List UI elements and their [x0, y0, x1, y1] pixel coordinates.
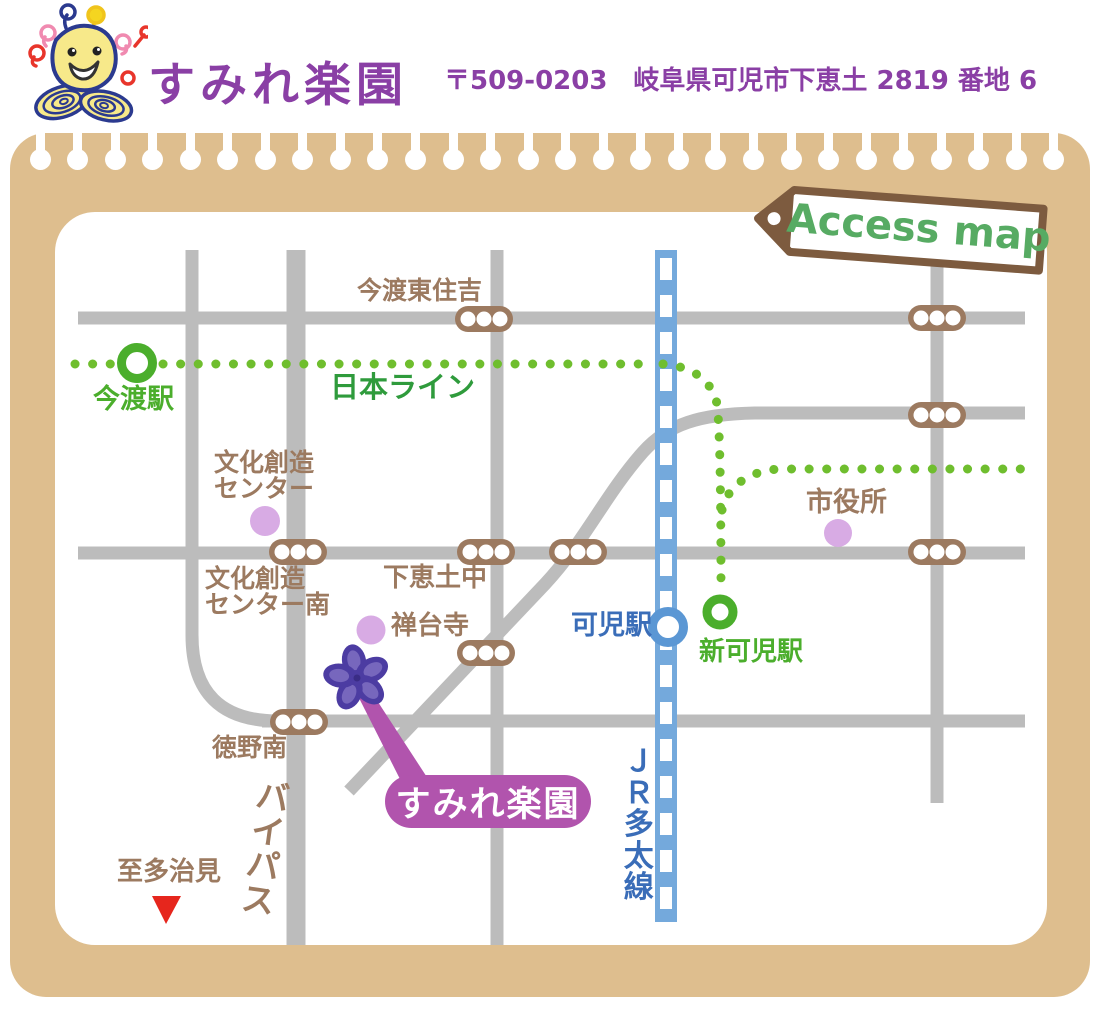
label-shimoedo-junior-high: 下恵土中 — [383, 565, 487, 592]
access-map-page: すみれ楽園 〒509-0203 岐阜県可児市下恵土 2819 番地 6 — [0, 0, 1100, 1012]
label-bunka-center-line2: センター — [214, 476, 314, 502]
map-canvas — [55, 212, 1047, 945]
label-city-hall: 市役所 — [806, 489, 887, 517]
label-zendaiji-temple: 禅台寺 — [391, 613, 469, 640]
mascot-face — [52, 26, 115, 90]
label-bunka-center-minami: 文化創造 センター南 — [205, 566, 330, 619]
label-jr-taita-line: ＪＲ多太線 — [623, 746, 655, 904]
label-kani-station: 可児駅 — [571, 612, 652, 640]
label-imawatari-station: 今渡駅 — [93, 386, 174, 414]
site-title: すみれ楽園 — [148, 46, 408, 115]
sumire-rakuen-destination-label: すみれ楽園 — [385, 775, 591, 828]
label-bunka-center-minami-line1: 文化創造 — [205, 566, 330, 592]
label-bunka-center: 文化創造 センター — [214, 450, 314, 503]
label-nihon-line: 日本ライン — [330, 372, 475, 402]
label-to-tajimi: 至多治見 — [117, 859, 221, 886]
label-shin-kani-station: 新可児駅 — [699, 639, 803, 666]
label-imawatari-higashi-sumiyoshi: 今渡東住吉 — [357, 278, 482, 304]
label-tokuno-minami: 徳野南 — [212, 735, 287, 761]
mascot-logo — [22, 2, 148, 128]
label-bunka-center-minami-line2: センター南 — [205, 592, 330, 618]
label-bunka-center-line1: 文化創造 — [214, 450, 314, 476]
sumire-rakuen-label-text: すみれ楽園 — [395, 776, 580, 827]
site-address: 〒509-0203 岐阜県可児市下恵土 2819 番地 6 — [444, 60, 1037, 97]
